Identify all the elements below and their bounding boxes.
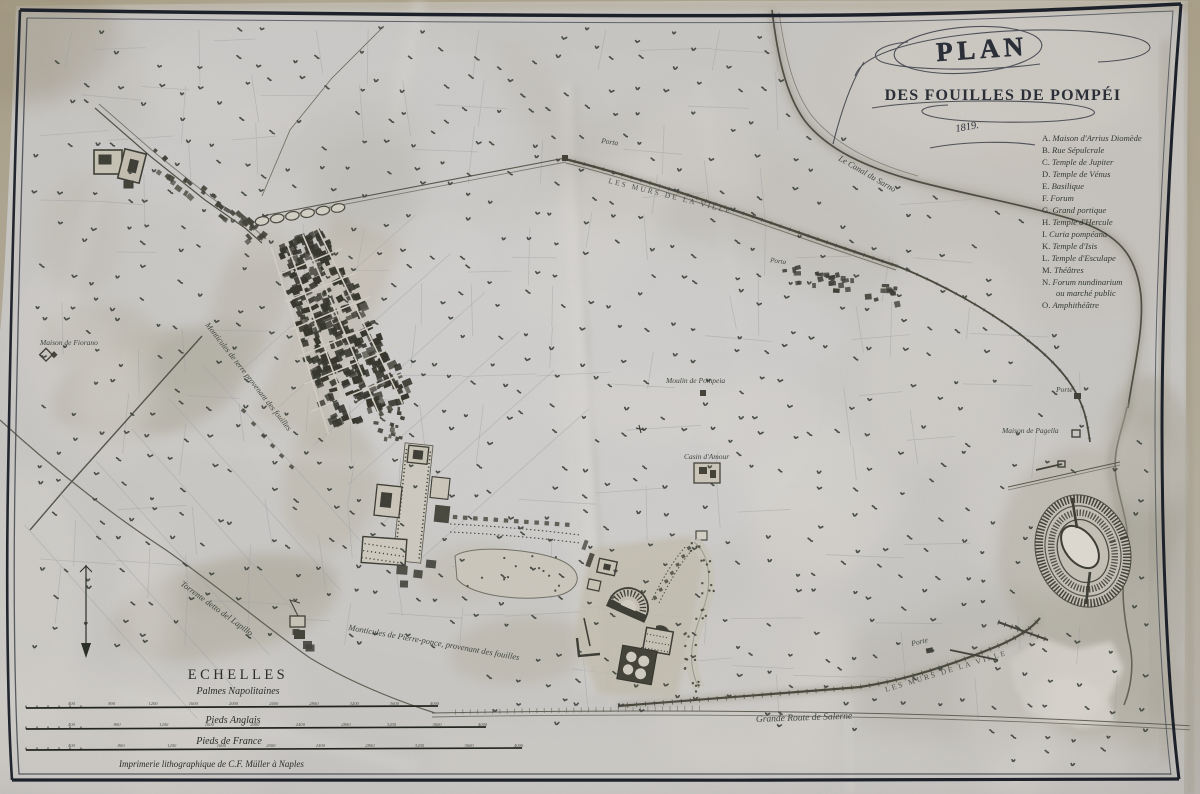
svg-text:2400: 2400 (296, 722, 306, 727)
svg-text:1600: 1600 (205, 722, 215, 727)
svg-text:H. Temple d'Hercule: H. Temple d'Hercule (1042, 217, 1113, 227)
svg-text:K. Temple d'Isis: K. Temple d'Isis (1042, 241, 1098, 251)
svg-text:1600: 1600 (189, 701, 199, 706)
svg-text:800: 800 (118, 743, 126, 748)
svg-text:3600: 3600 (390, 701, 400, 706)
svg-text:3600: 3600 (432, 722, 442, 727)
svg-text:C. Temple de Jupiter: C. Temple de Jupiter (1042, 157, 1114, 167)
svg-text:2000: 2000 (250, 722, 260, 727)
svg-text:A. Maison d'Arrius Diomède: A. Maison d'Arrius Diomède (1042, 133, 1142, 143)
svg-text:Maison de Fiorano: Maison de Fiorano (39, 338, 98, 347)
svg-text:Palmes Napolitaines: Palmes Napolitaines (195, 686, 279, 697)
svg-text:G. Grand portique: G. Grand portique (1042, 205, 1106, 215)
svg-text:1200: 1200 (159, 722, 169, 727)
svg-text:F. Forum: F. Forum (1042, 193, 1074, 203)
svg-text:4000: 4000 (514, 743, 524, 748)
svg-text:400: 400 (68, 722, 76, 727)
svg-text:4000: 4000 (430, 701, 440, 706)
svg-text:3200: 3200 (415, 743, 425, 748)
svg-text:800: 800 (108, 701, 116, 706)
svg-text:1200: 1200 (167, 743, 177, 748)
svg-text:Porte: Porte (1055, 385, 1073, 394)
svg-text:B. Rue Sépulcrale: B. Rue Sépulcrale (1042, 145, 1104, 155)
svg-text:2800: 2800 (309, 701, 319, 706)
svg-text:O. Amphithéâtre: O. Amphithéâtre (1042, 300, 1099, 310)
svg-text:3200: 3200 (350, 701, 360, 706)
svg-text:3600: 3600 (464, 743, 474, 748)
svg-text:400: 400 (68, 743, 76, 748)
svg-text:2400: 2400 (316, 743, 326, 748)
svg-text:Pieds de France: Pieds de France (195, 736, 262, 747)
svg-text:1200: 1200 (148, 701, 158, 706)
svg-text:Moulin de Pompeia: Moulin de Pompeia (665, 376, 725, 385)
svg-text:ECHELLES: ECHELLES (188, 667, 289, 683)
svg-text:M. Théâtres: M. Théâtres (1042, 265, 1084, 275)
svg-text:4000: 4000 (478, 722, 488, 727)
svg-text:400: 400 (68, 701, 76, 706)
svg-text:Casin d'Amour: Casin d'Amour (684, 452, 729, 461)
svg-text:Maison de Pagella: Maison de Pagella (1001, 426, 1059, 435)
svg-text:2000: 2000 (229, 701, 239, 706)
svg-text:Imprimerie lithographique de C: Imprimerie lithographique de C.F. Müller… (118, 759, 304, 769)
svg-text:800: 800 (114, 722, 122, 727)
svg-text:D. Temple de Vénus: D. Temple de Vénus (1042, 169, 1111, 179)
svg-text:3200: 3200 (387, 722, 397, 727)
svg-text:I. Curia pompéana: I. Curia pompéana (1042, 229, 1107, 239)
svg-text:ou marché public: ou marché public (1056, 288, 1116, 298)
svg-text:2800: 2800 (341, 722, 351, 727)
svg-text:E. Basilique: E. Basilique (1042, 181, 1084, 191)
svg-text:L. Temple d'Esculape: L. Temple d'Esculape (1042, 253, 1116, 263)
svg-text:N. Forum nundinarium: N. Forum nundinarium (1042, 277, 1122, 287)
svg-text:2400: 2400 (269, 701, 279, 706)
svg-text:1600: 1600 (217, 743, 227, 748)
svg-text:2800: 2800 (365, 743, 375, 748)
svg-text:2000: 2000 (266, 743, 276, 748)
